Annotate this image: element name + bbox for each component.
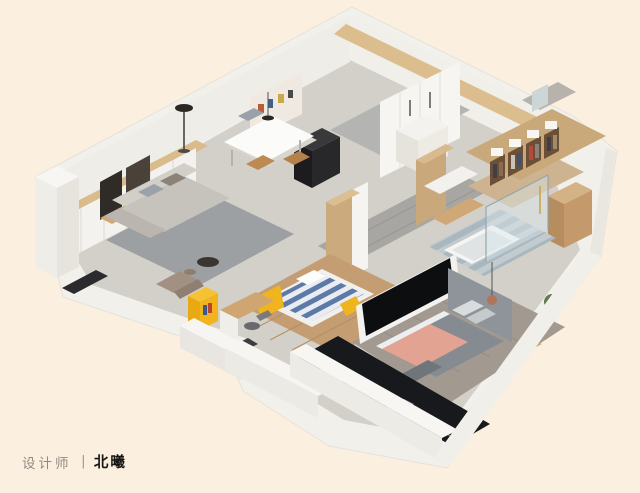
designer-caption: 设计师 | 北曦 (22, 451, 127, 472)
designer-name: 北曦 (94, 451, 127, 472)
pendant-lamp (262, 116, 274, 121)
coffee-table (197, 257, 219, 267)
apartment-render (0, 0, 640, 493)
floor-lamp (175, 104, 193, 112)
desk-chair (244, 322, 260, 330)
copper-pendant (487, 295, 497, 305)
west-wall-block (35, 166, 79, 278)
caption-divider: | (81, 454, 84, 469)
designer-label: 设计师 (22, 452, 72, 472)
floorplan-screenshot: 设计师 | 北曦 (0, 0, 640, 493)
